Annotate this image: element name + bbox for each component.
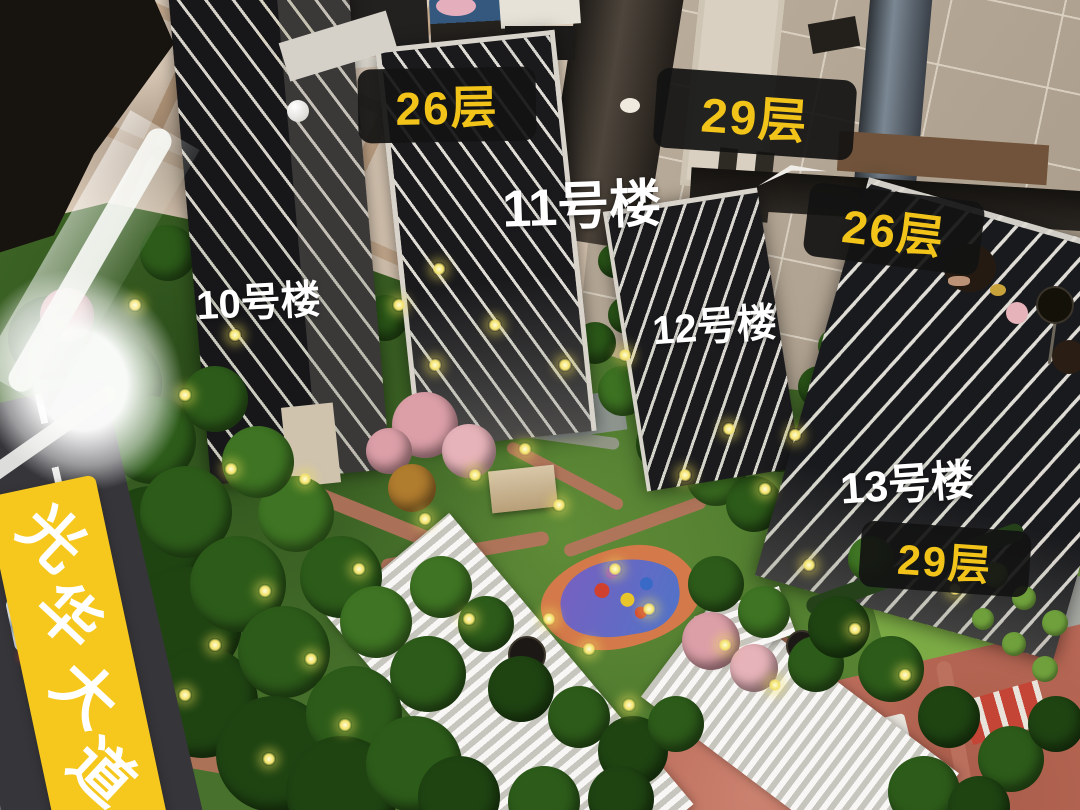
garden-light (258, 584, 272, 598)
garden-light (618, 348, 632, 362)
garden-light (518, 442, 532, 456)
garden-light (432, 262, 446, 276)
garden-light (542, 612, 556, 626)
garden-light (802, 558, 816, 572)
garden-light (418, 512, 432, 526)
floor-badge-building-13: 29层 (858, 520, 1032, 598)
tree (918, 686, 980, 748)
tree (858, 636, 924, 702)
garden-light (558, 358, 572, 372)
banner-char: 大 (34, 645, 134, 746)
garden-light (262, 752, 276, 766)
gold-ornament (990, 284, 1006, 296)
garden-light (298, 472, 312, 486)
lawn-tree (972, 608, 994, 630)
tree (688, 556, 744, 612)
garden-light (428, 358, 442, 372)
sales-center-model-photo: 26层 29层 26层 29层 10号楼 11号楼 12号楼 13号楼 光 华 … (0, 0, 1080, 810)
visitor-hand (948, 276, 970, 286)
garden-light (622, 698, 636, 712)
garden-light (788, 428, 802, 442)
garden-light (304, 652, 318, 666)
white-sphere (287, 100, 309, 122)
tree (648, 696, 704, 752)
tree (488, 656, 554, 722)
garden-light (392, 298, 406, 312)
tree (1028, 696, 1080, 752)
garden-light (208, 638, 222, 652)
lollipop-sign (1036, 286, 1074, 324)
garden-light (722, 422, 736, 436)
garden-light (338, 718, 352, 732)
tree (738, 586, 790, 638)
lawn-tree (1002, 632, 1026, 656)
building-label-12: 12号楼 (650, 290, 778, 357)
floor-badge-building-10: 26层 (357, 66, 536, 143)
garden-light (352, 562, 366, 576)
garden-light (178, 688, 192, 702)
building-label-11: 11号楼 (501, 161, 663, 242)
tree (390, 636, 466, 712)
garden-light (228, 328, 242, 342)
lawn-tree (1042, 610, 1068, 636)
garden-light (468, 468, 482, 482)
building-label-10: 10号楼 (195, 267, 322, 331)
pavilion (488, 465, 558, 514)
pink-ball-marker (1006, 302, 1028, 324)
garden-light (898, 668, 912, 682)
garden-light (678, 468, 692, 482)
garden-light (848, 622, 862, 636)
garden-light (768, 678, 782, 692)
garden-light (462, 612, 476, 626)
visitor-head (1052, 340, 1080, 374)
banner-char: 华 (18, 567, 118, 668)
garden-light (608, 562, 622, 576)
floor-badge-building-11: 29层 (652, 67, 857, 161)
autumn-tree (388, 464, 436, 512)
banner-char: 道 (51, 723, 151, 810)
building-label-13: 13号楼 (838, 445, 976, 516)
banner-char: 光 (1, 488, 101, 589)
garden-light (718, 638, 732, 652)
garden-light (642, 602, 656, 616)
wall-lamp (620, 98, 640, 113)
garden-light (582, 642, 596, 656)
garden-light (758, 482, 772, 496)
lawn-tree (1032, 656, 1058, 682)
garden-light (488, 318, 502, 332)
garden-light (552, 498, 566, 512)
